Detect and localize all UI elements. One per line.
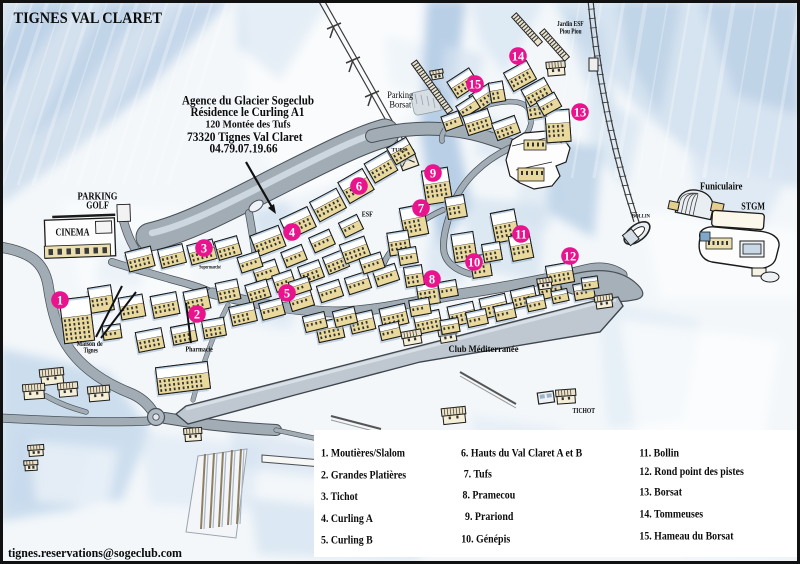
svg-text:2. Grandes Platières: 2. Grandes Platières [321,470,407,482]
svg-text:7: 7 [418,201,424,215]
svg-text:Supermarché: Supermarché [199,265,221,271]
svg-text:Club Méditerranée: Club Méditerranée [449,344,520,355]
svg-text:10. Génépis: 10. Génépis [461,534,511,546]
svg-text:Piou Piou: Piou Piou [560,27,582,36]
svg-text:CINEMA: CINEMA [56,227,90,239]
svg-text:Parking: Parking [387,91,413,101]
svg-text:TICHOT: TICHOT [573,407,596,415]
svg-text:12. Rond point des pistes: 12. Rond point des pistes [639,466,744,478]
svg-text:tignes.reservations@sogeclub.c: tignes.reservations@sogeclub.com [8,545,182,560]
svg-text:Borsat: Borsat [389,101,411,111]
svg-text:Pharmacie: Pharmacie [186,346,213,354]
svg-text:9. Prariond: 9. Prariond [465,511,514,523]
svg-text:TIGNES VAL CLARET: TIGNES VAL CLARET [14,10,163,27]
svg-text:5: 5 [284,286,290,300]
svg-text:4. Curling A: 4. Curling A [321,513,374,525]
svg-text:8. Pramecou: 8. Pramecou [463,490,516,502]
svg-text:12: 12 [564,249,577,263]
svg-text:9: 9 [430,166,436,180]
svg-text:13: 13 [574,105,587,119]
svg-text:11: 11 [515,227,527,241]
svg-text:7. Tufs: 7. Tufs [464,469,493,481]
svg-text:4: 4 [289,225,296,239]
svg-text:1. Moutières/Slalom: 1. Moutières/Slalom [321,448,406,460]
svg-text:TUFS: TUFS [392,148,406,154]
svg-text:2: 2 [194,307,200,321]
svg-text:10: 10 [468,255,481,269]
svg-text:15. Hameau du Borsat: 15. Hameau du Borsat [639,530,733,542]
svg-text:Tignes: Tignes [84,346,98,354]
svg-text:04.79.07.19.66: 04.79.07.19.66 [210,142,278,156]
svg-text:3: 3 [201,241,207,255]
svg-text:STGM: STGM [741,202,765,213]
svg-text:BOLLIN: BOLLIN [632,214,650,220]
svg-text:14. Tommeuses: 14. Tommeuses [639,509,703,521]
svg-text:6. Hauts du Val Claret A et B: 6. Hauts du Val Claret A et B [461,447,583,459]
svg-text:Funiculaire: Funiculaire [700,182,743,193]
svg-text:1: 1 [57,293,63,307]
svg-text:GOLF: GOLF [86,200,109,212]
svg-text:13. Borsat: 13. Borsat [639,487,682,499]
svg-text:8: 8 [429,272,435,286]
svg-text:14: 14 [512,49,525,63]
svg-text:3. Tichot: 3. Tichot [321,491,358,503]
svg-text:11. Bollin: 11. Bollin [639,447,679,459]
svg-text:5. Curling B: 5. Curling B [321,535,373,547]
svg-text:120 Montée des Tufs: 120 Montée des Tufs [206,119,291,131]
svg-text:6: 6 [356,179,362,193]
svg-text:15: 15 [469,77,482,91]
svg-text:ESF: ESF [362,210,373,219]
svg-text:Résidence le Curling A1: Résidence le Curling A1 [191,105,305,119]
